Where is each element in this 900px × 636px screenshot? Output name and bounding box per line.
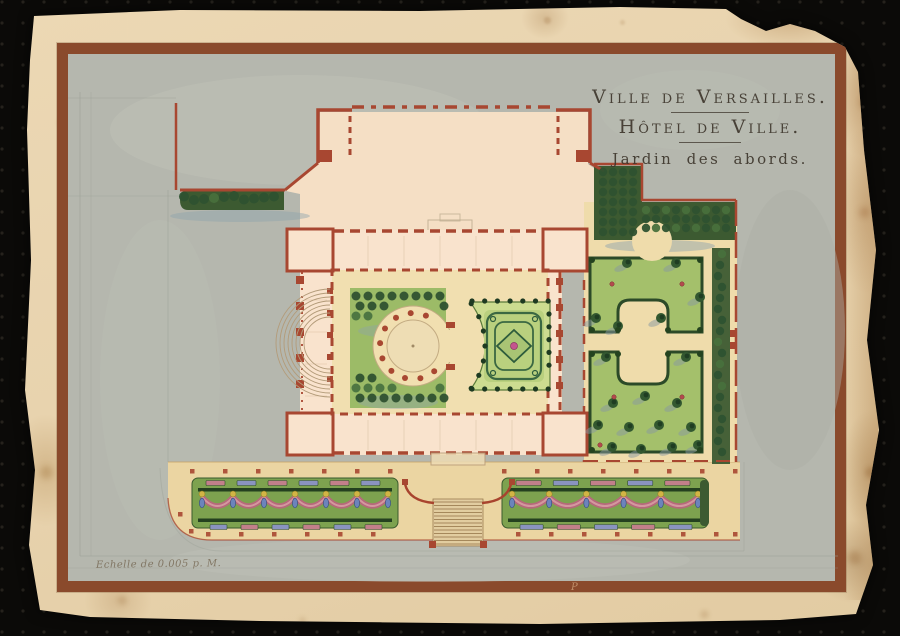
ring-pier (446, 322, 455, 328)
hedge-blob (722, 215, 730, 223)
hedge-blob (662, 224, 670, 232)
hedge-blob (609, 228, 617, 236)
fence-post (714, 532, 719, 537)
hedge-blob (714, 371, 722, 379)
garland-vase (695, 498, 700, 508)
hedge-blob (692, 224, 700, 232)
hedge-blob (702, 206, 710, 214)
hedge-blob (692, 215, 700, 223)
shrub (356, 302, 365, 311)
court-column (327, 332, 333, 338)
scale-annotation: Echelle de 0.005 p. M. (96, 558, 221, 571)
flower-bed (334, 525, 351, 530)
hedge-row (508, 519, 702, 523)
east-column (556, 382, 563, 389)
ring-column (393, 315, 399, 321)
shrub (424, 292, 433, 301)
hedge-blob (718, 415, 726, 423)
garland-finial-top (658, 491, 664, 497)
topiary (495, 386, 500, 391)
tree-glyph (685, 354, 690, 359)
fence-post (322, 469, 327, 474)
garland-vase (261, 498, 266, 508)
hedge-blob (642, 206, 650, 214)
ring-column (408, 310, 414, 316)
shrub (388, 292, 397, 301)
corner-topiary (697, 351, 703, 357)
hedge-blob (609, 178, 617, 186)
flower-bed (361, 481, 380, 486)
flower-bed (299, 481, 318, 486)
shrub (368, 302, 377, 311)
hedge-blob (599, 218, 607, 226)
corner-topiary (697, 447, 703, 453)
topiary (482, 343, 487, 348)
hedge-blob (239, 195, 249, 205)
flower-bed (669, 525, 692, 530)
shrub (364, 292, 373, 301)
east-column (556, 304, 563, 311)
flower-bed (365, 525, 382, 530)
hedge-blob (718, 448, 726, 456)
hedge-blob (642, 224, 650, 232)
fence-post (289, 469, 294, 474)
topiary (546, 298, 551, 303)
photo-background: Ville de Versailles. Hôtel de Ville. Jar… (0, 0, 900, 636)
ring-column (423, 313, 429, 319)
garland-finial-top (323, 491, 329, 497)
ring-east-opening (444, 330, 460, 362)
shrub (356, 394, 365, 403)
flower-dot (598, 443, 602, 447)
hedge-blob (249, 194, 259, 204)
garland-finial-top (230, 491, 236, 497)
shrub (440, 394, 449, 403)
border-ornament-mark: P (571, 582, 578, 593)
shrub (364, 312, 373, 321)
east-column (556, 330, 563, 337)
fence-post (305, 532, 310, 537)
hedge-blob (716, 360, 724, 368)
tree-glyph (605, 354, 610, 359)
hedge-blob (609, 198, 617, 206)
hedge-blob (269, 192, 279, 202)
hedge-blob (718, 382, 726, 390)
hedge-blob (179, 192, 189, 202)
garland-vase (199, 498, 204, 508)
hedge-blob (718, 316, 726, 324)
circular-court (350, 288, 460, 409)
hedge-blob (702, 215, 710, 223)
hedge-blob (672, 215, 680, 223)
hedge-blob (642, 215, 650, 223)
topiary (546, 350, 551, 355)
hedge-blob (682, 206, 690, 214)
tree-glyph (595, 315, 600, 320)
garland-finial-top (621, 491, 627, 497)
hedge-row (198, 519, 392, 523)
tree-glyph (658, 422, 663, 427)
stair-post (480, 541, 487, 548)
west-pilaster (296, 276, 304, 284)
title-underline-1 (671, 112, 749, 113)
garland-vase (658, 498, 663, 508)
ring-column (382, 326, 388, 332)
fence-post (700, 469, 705, 474)
hedge-blob (609, 168, 617, 176)
hedge-blob (599, 178, 607, 186)
flower-bed (557, 525, 580, 530)
garland-border (502, 478, 708, 530)
corner-topiary (615, 351, 621, 357)
corner-topiary (697, 257, 703, 263)
hedge-blob (652, 206, 660, 214)
flower-bed (303, 525, 320, 530)
topiary (476, 314, 481, 319)
fence-post (516, 532, 521, 537)
flower-bed (237, 481, 256, 486)
plan-title-building: Hôtel de Ville. (592, 116, 828, 138)
topiary (482, 298, 487, 303)
hedge-blob (714, 305, 722, 313)
hedge-blob (599, 188, 607, 196)
wing-post (402, 479, 408, 485)
tree-glyph (617, 323, 622, 328)
shrub (352, 384, 361, 393)
ring-column (377, 340, 383, 346)
hedge-blob (716, 294, 724, 302)
tree-glyph (690, 424, 695, 429)
shrub (368, 394, 377, 403)
pavilion-foot (318, 150, 332, 162)
shrub (364, 384, 373, 393)
garland-finial-top (546, 491, 552, 497)
ne-pavilion (542, 228, 588, 272)
garland-finial-top (261, 491, 267, 497)
shrub (412, 292, 421, 301)
fence-post (338, 532, 343, 537)
pavilion-foot (576, 150, 590, 162)
topiary (546, 324, 551, 329)
shrub (352, 312, 361, 321)
flower-bed (590, 481, 615, 486)
east-column (556, 278, 563, 285)
shrub (400, 292, 409, 301)
garland-vase (385, 498, 390, 508)
hedge-blob (619, 208, 627, 216)
tree-glyph (675, 260, 680, 265)
fence-post (239, 532, 244, 537)
hedge-blob (619, 198, 627, 206)
stair-post (429, 541, 436, 548)
fence-post (733, 469, 738, 474)
ring-pier (446, 364, 455, 370)
flower-bed (330, 481, 349, 486)
corner-topiary (697, 327, 703, 333)
plan-subtitle: Jardin des abords. (592, 150, 828, 168)
garland-vase (509, 498, 514, 508)
hedge-blob (714, 338, 722, 346)
hedge-blob (702, 224, 710, 232)
south-porch (431, 453, 485, 465)
fence-post (272, 532, 277, 537)
corner-topiary (615, 327, 621, 333)
topiary (546, 386, 551, 391)
topiary (476, 373, 481, 378)
hedge-blob (718, 250, 726, 258)
hedge-blob (629, 198, 637, 206)
garland-finial-top (354, 491, 360, 497)
court-center-mark (412, 345, 415, 348)
tree-glyph (699, 294, 704, 299)
topiary (508, 298, 513, 303)
hedge-blob (609, 188, 617, 196)
fence-post (256, 469, 261, 474)
hedge-blob (599, 168, 607, 176)
tree-glyph (611, 444, 616, 449)
tree-glyph (671, 444, 676, 449)
hedge-blob (619, 188, 627, 196)
hedge-blob (716, 327, 724, 335)
hedge-blob (629, 228, 637, 236)
hedge-blob (714, 272, 722, 280)
flower-dot (610, 282, 614, 286)
shrub (380, 394, 389, 403)
flower-bed (272, 525, 289, 530)
hedge-blob (662, 215, 670, 223)
flower-bed (210, 525, 227, 530)
garland-vase (323, 498, 328, 508)
sw-pavilion (286, 412, 334, 456)
topiary (520, 298, 525, 303)
shrub (428, 394, 437, 403)
flower-bed (665, 481, 690, 486)
garland-finial-top (385, 491, 391, 497)
east-column (556, 356, 563, 363)
hedge-blob (652, 215, 660, 223)
fence-post (568, 469, 573, 474)
topiary (546, 311, 551, 316)
flower-bed (594, 525, 617, 530)
garland-finial-top (509, 491, 515, 497)
shrub (356, 374, 365, 383)
fence-post (502, 469, 507, 474)
hedge-blob (189, 195, 199, 205)
fence-post (634, 469, 639, 474)
hedge-blob (629, 188, 637, 196)
ring-column (379, 355, 385, 361)
fence-post (582, 532, 587, 537)
flower-dot (612, 395, 616, 399)
topiary (520, 386, 525, 391)
tree-glyph (644, 393, 649, 398)
garden-gate-pier (730, 330, 736, 337)
flower-bed (516, 481, 541, 486)
foxing-spots (0, 0, 5, 5)
tree-glyph (626, 260, 631, 265)
topiary (481, 328, 486, 333)
corner-topiary (665, 351, 671, 357)
hedge-blob (259, 193, 269, 203)
title-block: Ville de Versailles. Hôtel de Ville. Jar… (592, 86, 828, 168)
topiary (546, 337, 551, 342)
fence-post (178, 512, 183, 517)
shrub (416, 394, 425, 403)
fence-post (648, 532, 653, 537)
garden-gate-pier (730, 342, 736, 349)
shrub (352, 292, 361, 301)
hedge-blob (672, 206, 680, 214)
fence-post (223, 469, 228, 474)
ring-column (388, 368, 394, 374)
garland-vase (547, 498, 552, 508)
hedge-blob (682, 224, 690, 232)
hedge-blob (712, 206, 720, 214)
flower-bed (520, 525, 543, 530)
corner-topiary (589, 351, 595, 357)
shrub (380, 302, 389, 311)
flower-bed (241, 525, 258, 530)
tree-glyph (676, 400, 681, 405)
topiary (469, 386, 474, 391)
hedge-blob (716, 393, 724, 401)
fence-post (601, 469, 606, 474)
corner-topiary (589, 447, 595, 453)
nw-pavilion (286, 228, 334, 272)
flower-bed (268, 481, 287, 486)
hedge-blob (599, 198, 607, 206)
court-column (327, 354, 333, 360)
hedge-blob (714, 437, 722, 445)
shrub (436, 384, 445, 393)
paper-wrap: Ville de Versailles. Hôtel de Ville. Jar… (0, 0, 900, 636)
fence-post (190, 469, 195, 474)
topiary (546, 363, 551, 368)
garland-vase (230, 498, 235, 508)
fence-post (388, 469, 393, 474)
tree-glyph (628, 424, 633, 429)
hedge-blob (629, 168, 637, 176)
ring-column (431, 368, 437, 374)
hedge-blob (692, 206, 700, 214)
shrub (368, 374, 377, 383)
topiary (533, 298, 538, 303)
hedge-blob (682, 215, 690, 223)
hedge-blob (652, 224, 660, 232)
hedge-blob (718, 283, 726, 291)
fence-post (681, 532, 686, 537)
topiary (533, 386, 538, 391)
tree-glyph (597, 422, 602, 427)
hedge-blob (629, 178, 637, 186)
se-pavilion (542, 412, 588, 456)
hedge-row (508, 488, 702, 492)
garland-vase (354, 498, 359, 508)
topiary (482, 386, 487, 391)
flower-bed (632, 525, 655, 530)
hedge-blob (716, 426, 724, 434)
hedge-blob (619, 178, 627, 186)
flower-bed (628, 481, 653, 486)
flower-bed (553, 481, 578, 486)
fence-post (355, 469, 360, 474)
fence-post (371, 532, 376, 537)
fence-post (667, 469, 672, 474)
garland-vase (292, 498, 297, 508)
fence-post (206, 532, 211, 537)
ring-column (417, 375, 423, 381)
garland-vase (621, 498, 626, 508)
hedge-blob (629, 218, 637, 226)
wash-patch (735, 190, 845, 470)
hedge-blob (599, 208, 607, 216)
hedge-blob (722, 206, 730, 214)
tree-glyph (697, 442, 702, 447)
shrub (404, 394, 413, 403)
corner-topiary (589, 257, 595, 263)
hedge-blob (662, 206, 670, 214)
shrub (388, 384, 397, 393)
plan-title-city: Ville de Versailles. (592, 86, 828, 108)
tree-glyph (640, 446, 645, 451)
topiary (508, 386, 513, 391)
hedge-blob (609, 208, 617, 216)
hedge-blob (718, 349, 726, 357)
shrub (376, 384, 385, 393)
parterre-center-flower (511, 343, 518, 350)
fence-post (733, 532, 738, 537)
fence-post (549, 532, 554, 537)
garland-finial-top (583, 491, 589, 497)
hedge-blob (229, 191, 239, 201)
shrub (440, 302, 449, 311)
topiary (469, 301, 474, 306)
flower-bed (206, 481, 225, 486)
ring-column (402, 375, 408, 381)
hedge-blob (712, 224, 720, 232)
drawing-sheet: Ville de Versailles. Hôtel de Ville. Jar… (0, 0, 900, 636)
hedge-shadow (170, 210, 310, 222)
shrub (436, 292, 445, 301)
fence-post (189, 529, 194, 534)
hedge-blob (609, 218, 617, 226)
topiary (495, 298, 500, 303)
forecourt-paving (286, 112, 620, 230)
hedge-blob (716, 261, 724, 269)
hedge-blob (619, 218, 627, 226)
wing-post (509, 479, 515, 485)
hedge-blob (672, 224, 680, 232)
corner-topiary (589, 327, 595, 333)
border-end-hedge (700, 480, 709, 526)
forecourt-layer (286, 112, 620, 232)
hedge-blob (712, 215, 720, 223)
garland-finial-top (199, 491, 205, 497)
title-underline-2 (679, 142, 741, 143)
hedge-blob (209, 193, 219, 203)
fence-post (615, 532, 620, 537)
garland-vase (584, 498, 589, 508)
shrub (392, 394, 401, 403)
tree-glyph (660, 315, 665, 320)
garland-finial-top (292, 491, 298, 497)
flower-dot (680, 282, 684, 286)
flower-dot (680, 395, 684, 399)
hedge-blob (219, 192, 229, 202)
fence-post (535, 469, 540, 474)
hedge-blob (199, 194, 209, 204)
corner-topiary (665, 327, 671, 333)
